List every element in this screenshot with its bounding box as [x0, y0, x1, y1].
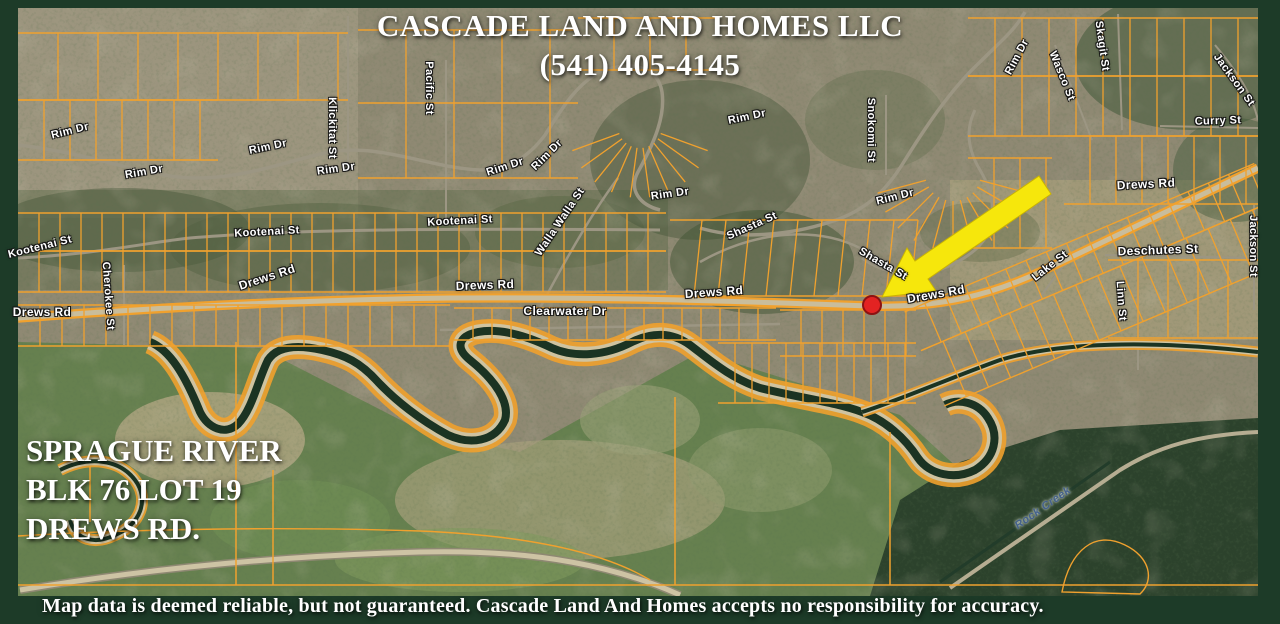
company-name: CASCADE LAND AND HOMES LLC	[377, 6, 903, 45]
property-info: SPRAGUE RIVER BLK 76 LOT 19 DREWS RD.	[26, 431, 282, 548]
disclaimer-text: Map data is deemed reliable, but not gua…	[42, 595, 1044, 618]
company-phone: (541) 405-4145	[377, 45, 903, 84]
header-title: CASCADE LAND AND HOMES LLC (541) 405-414…	[377, 6, 903, 84]
map-flyer: Rim DrRim DrRim DrRim DrRim DrRim DrRim …	[0, 0, 1280, 624]
property-line-2: BLK 76 LOT 19	[26, 470, 282, 509]
property-marker-dot	[863, 296, 881, 314]
property-line-1: SPRAGUE RIVER	[26, 431, 282, 470]
property-line-3: DREWS RD.	[26, 509, 282, 548]
